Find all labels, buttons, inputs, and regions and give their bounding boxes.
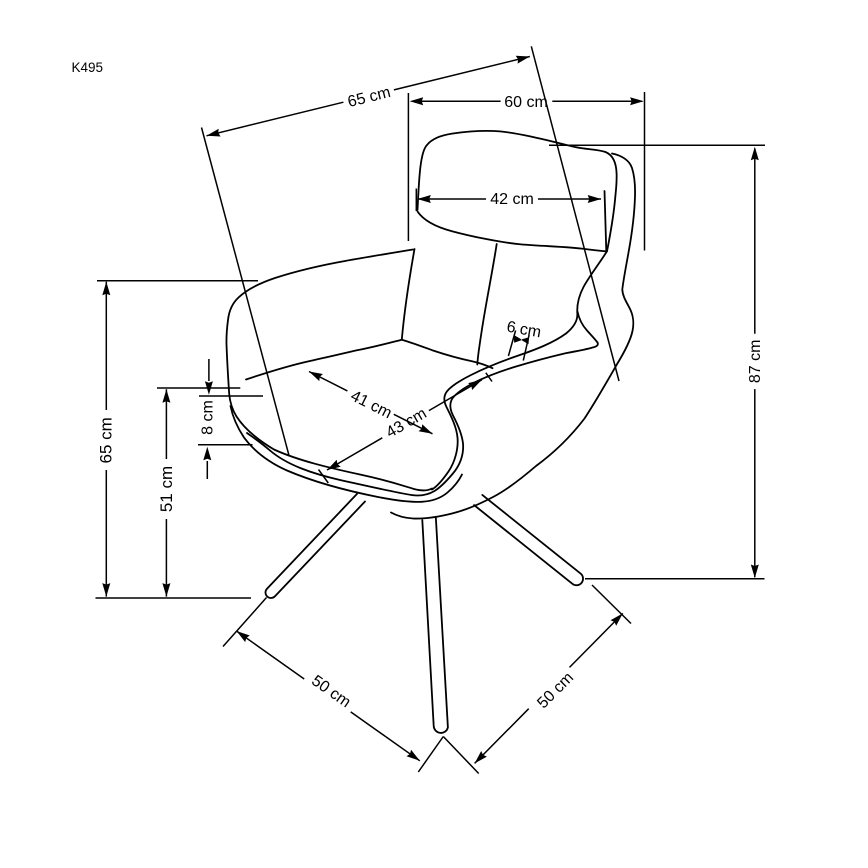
svg-text:42 cm: 42 cm bbox=[490, 191, 534, 208]
svg-text:65 cm: 65 cm bbox=[97, 417, 116, 463]
svg-text:87 cm: 87 cm bbox=[747, 340, 764, 384]
svg-text:60 cm: 60 cm bbox=[504, 94, 548, 111]
svg-text:51 cm: 51 cm bbox=[157, 466, 176, 512]
svg-text:K495: K495 bbox=[72, 60, 104, 75]
svg-text:8 cm: 8 cm bbox=[200, 400, 217, 435]
